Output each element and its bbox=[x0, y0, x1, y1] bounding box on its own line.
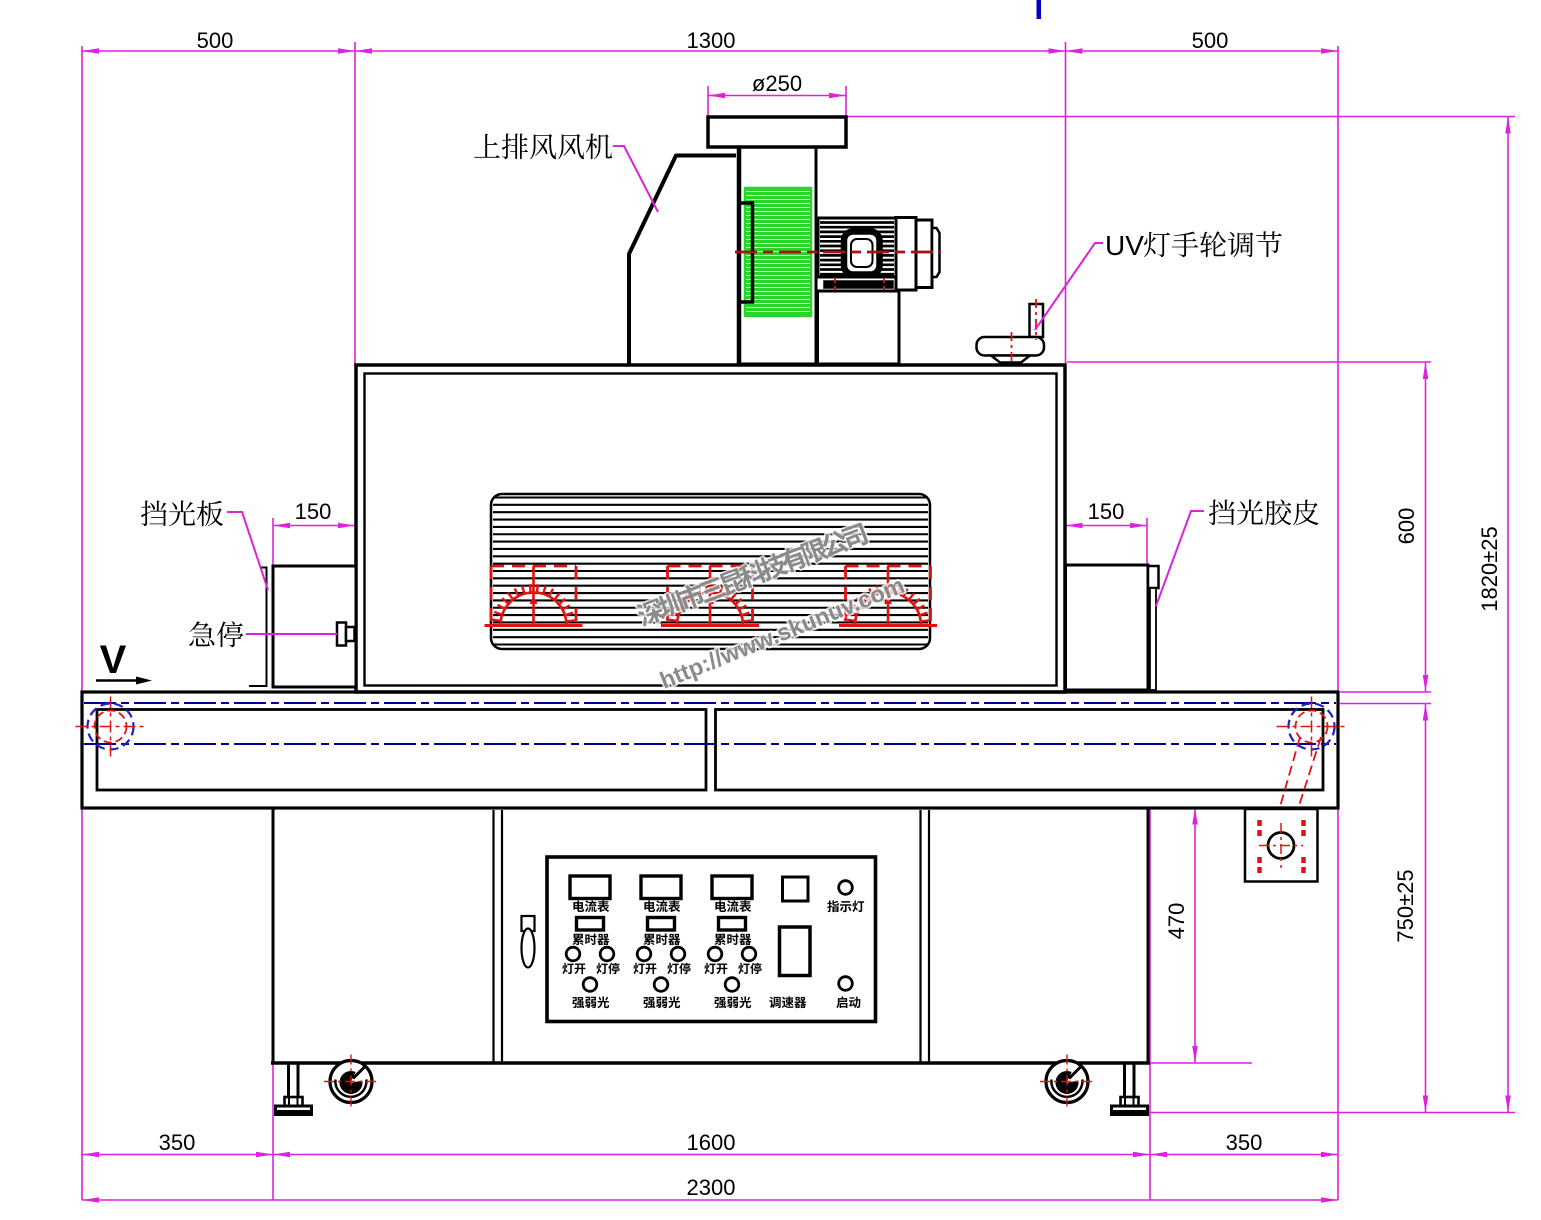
svg-text:150: 150 bbox=[295, 499, 332, 524]
svg-text:2300: 2300 bbox=[687, 1175, 736, 1200]
svg-text:V: V bbox=[100, 638, 127, 682]
svg-text:470: 470 bbox=[1164, 903, 1189, 940]
svg-text:ø250: ø250 bbox=[752, 71, 802, 96]
svg-text:350: 350 bbox=[1226, 1130, 1263, 1155]
svg-text:600: 600 bbox=[1394, 508, 1419, 545]
svg-text:1820±25: 1820±25 bbox=[1477, 526, 1502, 612]
svg-text:1600: 1600 bbox=[687, 1130, 736, 1155]
svg-text:1300: 1300 bbox=[687, 28, 736, 53]
svg-text:750±25: 750±25 bbox=[1393, 869, 1418, 942]
svg-text:500: 500 bbox=[1192, 28, 1229, 53]
svg-text:150: 150 bbox=[1088, 499, 1125, 524]
svg-text:350: 350 bbox=[159, 1130, 196, 1155]
svg-text:UV: UV bbox=[1105, 230, 1144, 261]
svg-text:500: 500 bbox=[197, 28, 234, 53]
